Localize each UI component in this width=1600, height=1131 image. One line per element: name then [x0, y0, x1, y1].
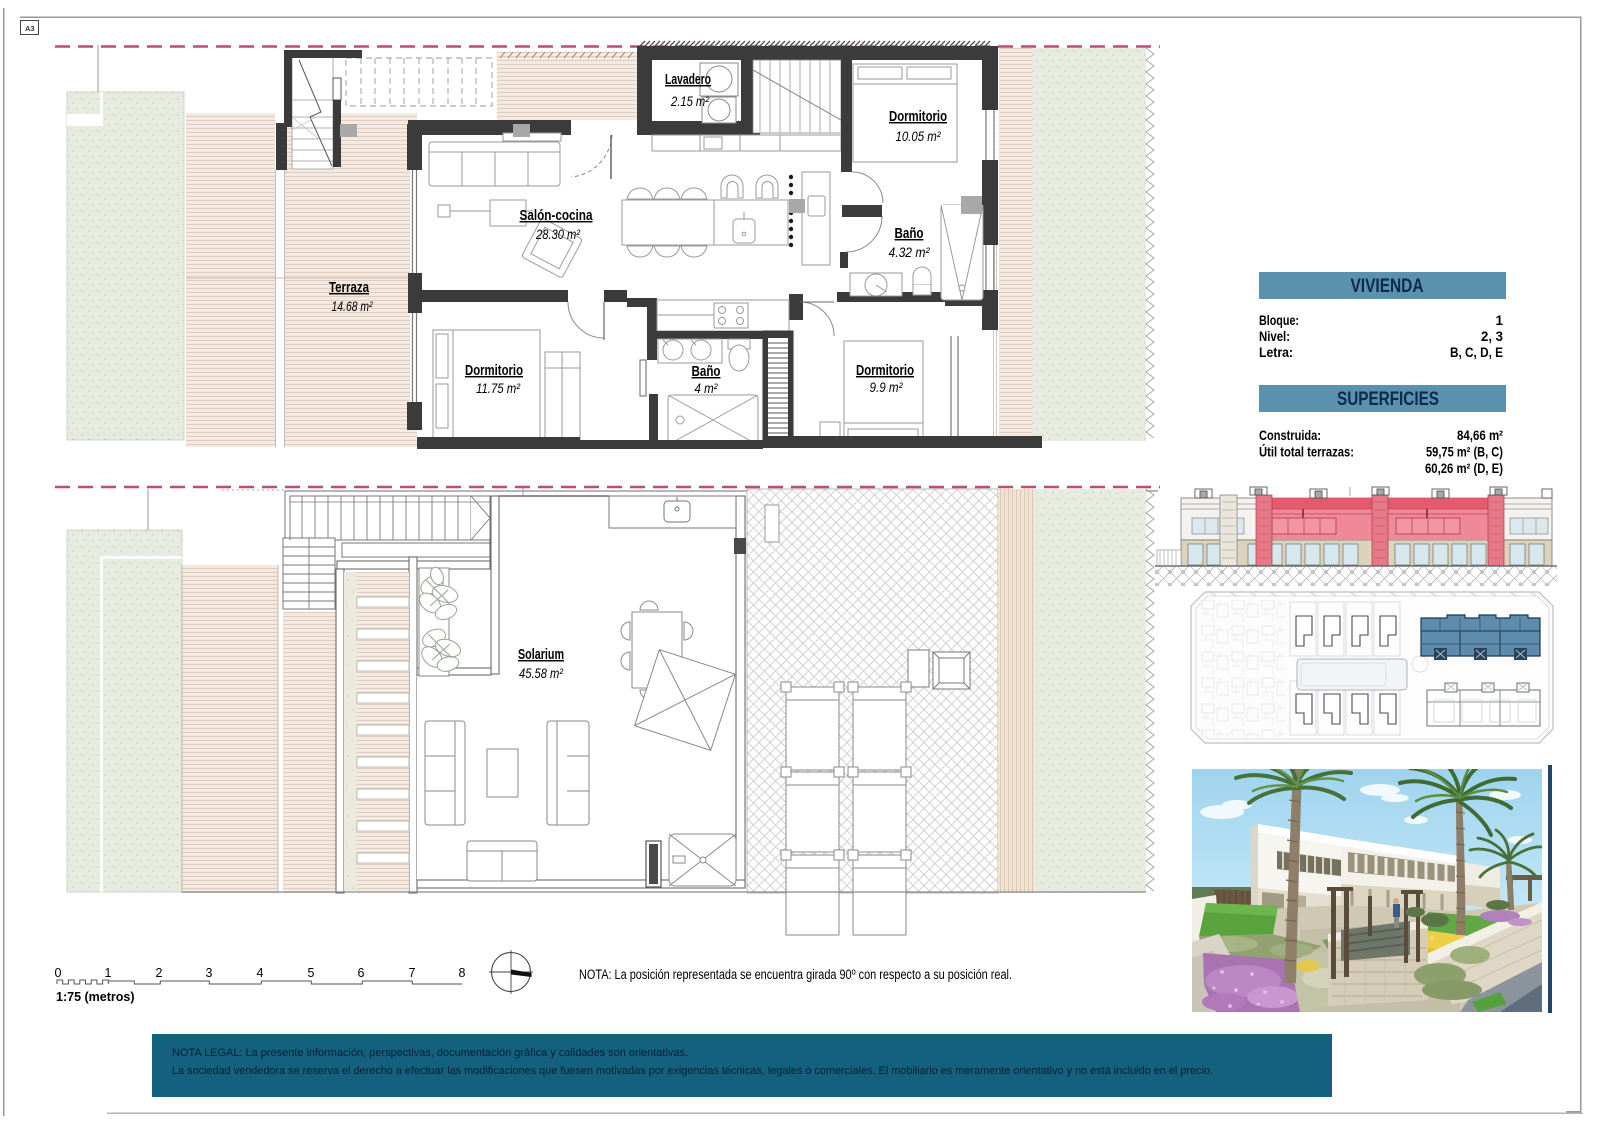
svg-text:Bloque:: Bloque: [1259, 313, 1299, 328]
svg-text:NOTA: La posición representada: NOTA: La posición representada se encuen… [579, 967, 1012, 982]
svg-text:45.58 m²: 45.58 m² [519, 666, 563, 681]
svg-text:0: 0 [55, 966, 62, 980]
svg-text:6: 6 [358, 966, 365, 980]
svg-text:11.75 m²: 11.75 m² [476, 381, 520, 396]
svg-text:Baño: Baño [692, 364, 721, 380]
svg-text:Construida:: Construida: [1259, 428, 1321, 443]
svg-text:SUPERFICIES: SUPERFICIES [1337, 388, 1439, 410]
svg-text:8: 8 [459, 966, 466, 980]
svg-text:4 m²: 4 m² [695, 381, 718, 396]
svg-text:14.68 m²: 14.68 m² [332, 299, 373, 314]
svg-text:Terraza: Terraza [329, 280, 370, 296]
svg-text:59,75 m² (B, C): 59,75 m² (B, C) [1426, 445, 1503, 460]
svg-text:Útil total terrazas:: Útil total terrazas: [1259, 445, 1354, 460]
svg-text:Baño: Baño [895, 226, 924, 242]
svg-text:84,66 m²: 84,66 m² [1457, 428, 1503, 443]
svg-text:Dormitorio: Dormitorio [465, 363, 523, 379]
svg-text:2: 2 [156, 966, 163, 980]
svg-text:4.32 m²: 4.32 m² [889, 245, 930, 260]
svg-text:9.9 m²: 9.9 m² [870, 380, 903, 395]
svg-text:La sociedad vendedora se reser: La sociedad vendedora se reserva el dere… [172, 1065, 1213, 1077]
svg-text:Salón-cocina: Salón-cocina [520, 208, 594, 224]
svg-text:VIVIENDA: VIVIENDA [1351, 275, 1424, 297]
svg-text:Letra:: Letra: [1259, 345, 1293, 360]
svg-text:A3: A3 [25, 24, 35, 33]
svg-text:7: 7 [409, 966, 416, 980]
svg-text:Dormitorio: Dormitorio [856, 363, 914, 379]
svg-text:5: 5 [308, 966, 315, 980]
svg-text:Nivel:: Nivel: [1259, 329, 1290, 344]
svg-text:10.05 m²: 10.05 m² [896, 129, 941, 144]
svg-text:1: 1 [1495, 313, 1503, 328]
svg-text:Solarium: Solarium [518, 647, 564, 663]
svg-text:Dormitorio: Dormitorio [889, 109, 947, 125]
svg-text:4: 4 [257, 966, 264, 980]
svg-text:60,26 m² (D, E): 60,26 m² (D, E) [1425, 461, 1503, 476]
svg-text:3: 3 [206, 966, 213, 980]
svg-text:B, C, D, E: B, C, D, E [1450, 345, 1503, 360]
svg-text:NOTA LEGAL: La presente inform: NOTA LEGAL: La presente información, per… [172, 1047, 688, 1059]
svg-text:1: 1 [105, 966, 112, 980]
svg-text:1:75 (metros): 1:75 (metros) [56, 990, 135, 1004]
svg-text:2, 3: 2, 3 [1481, 329, 1503, 344]
svg-text:2.15 m²: 2.15 m² [670, 94, 709, 109]
svg-text:Lavadero: Lavadero [665, 72, 711, 88]
svg-text:28.30 m²: 28.30 m² [535, 227, 580, 242]
